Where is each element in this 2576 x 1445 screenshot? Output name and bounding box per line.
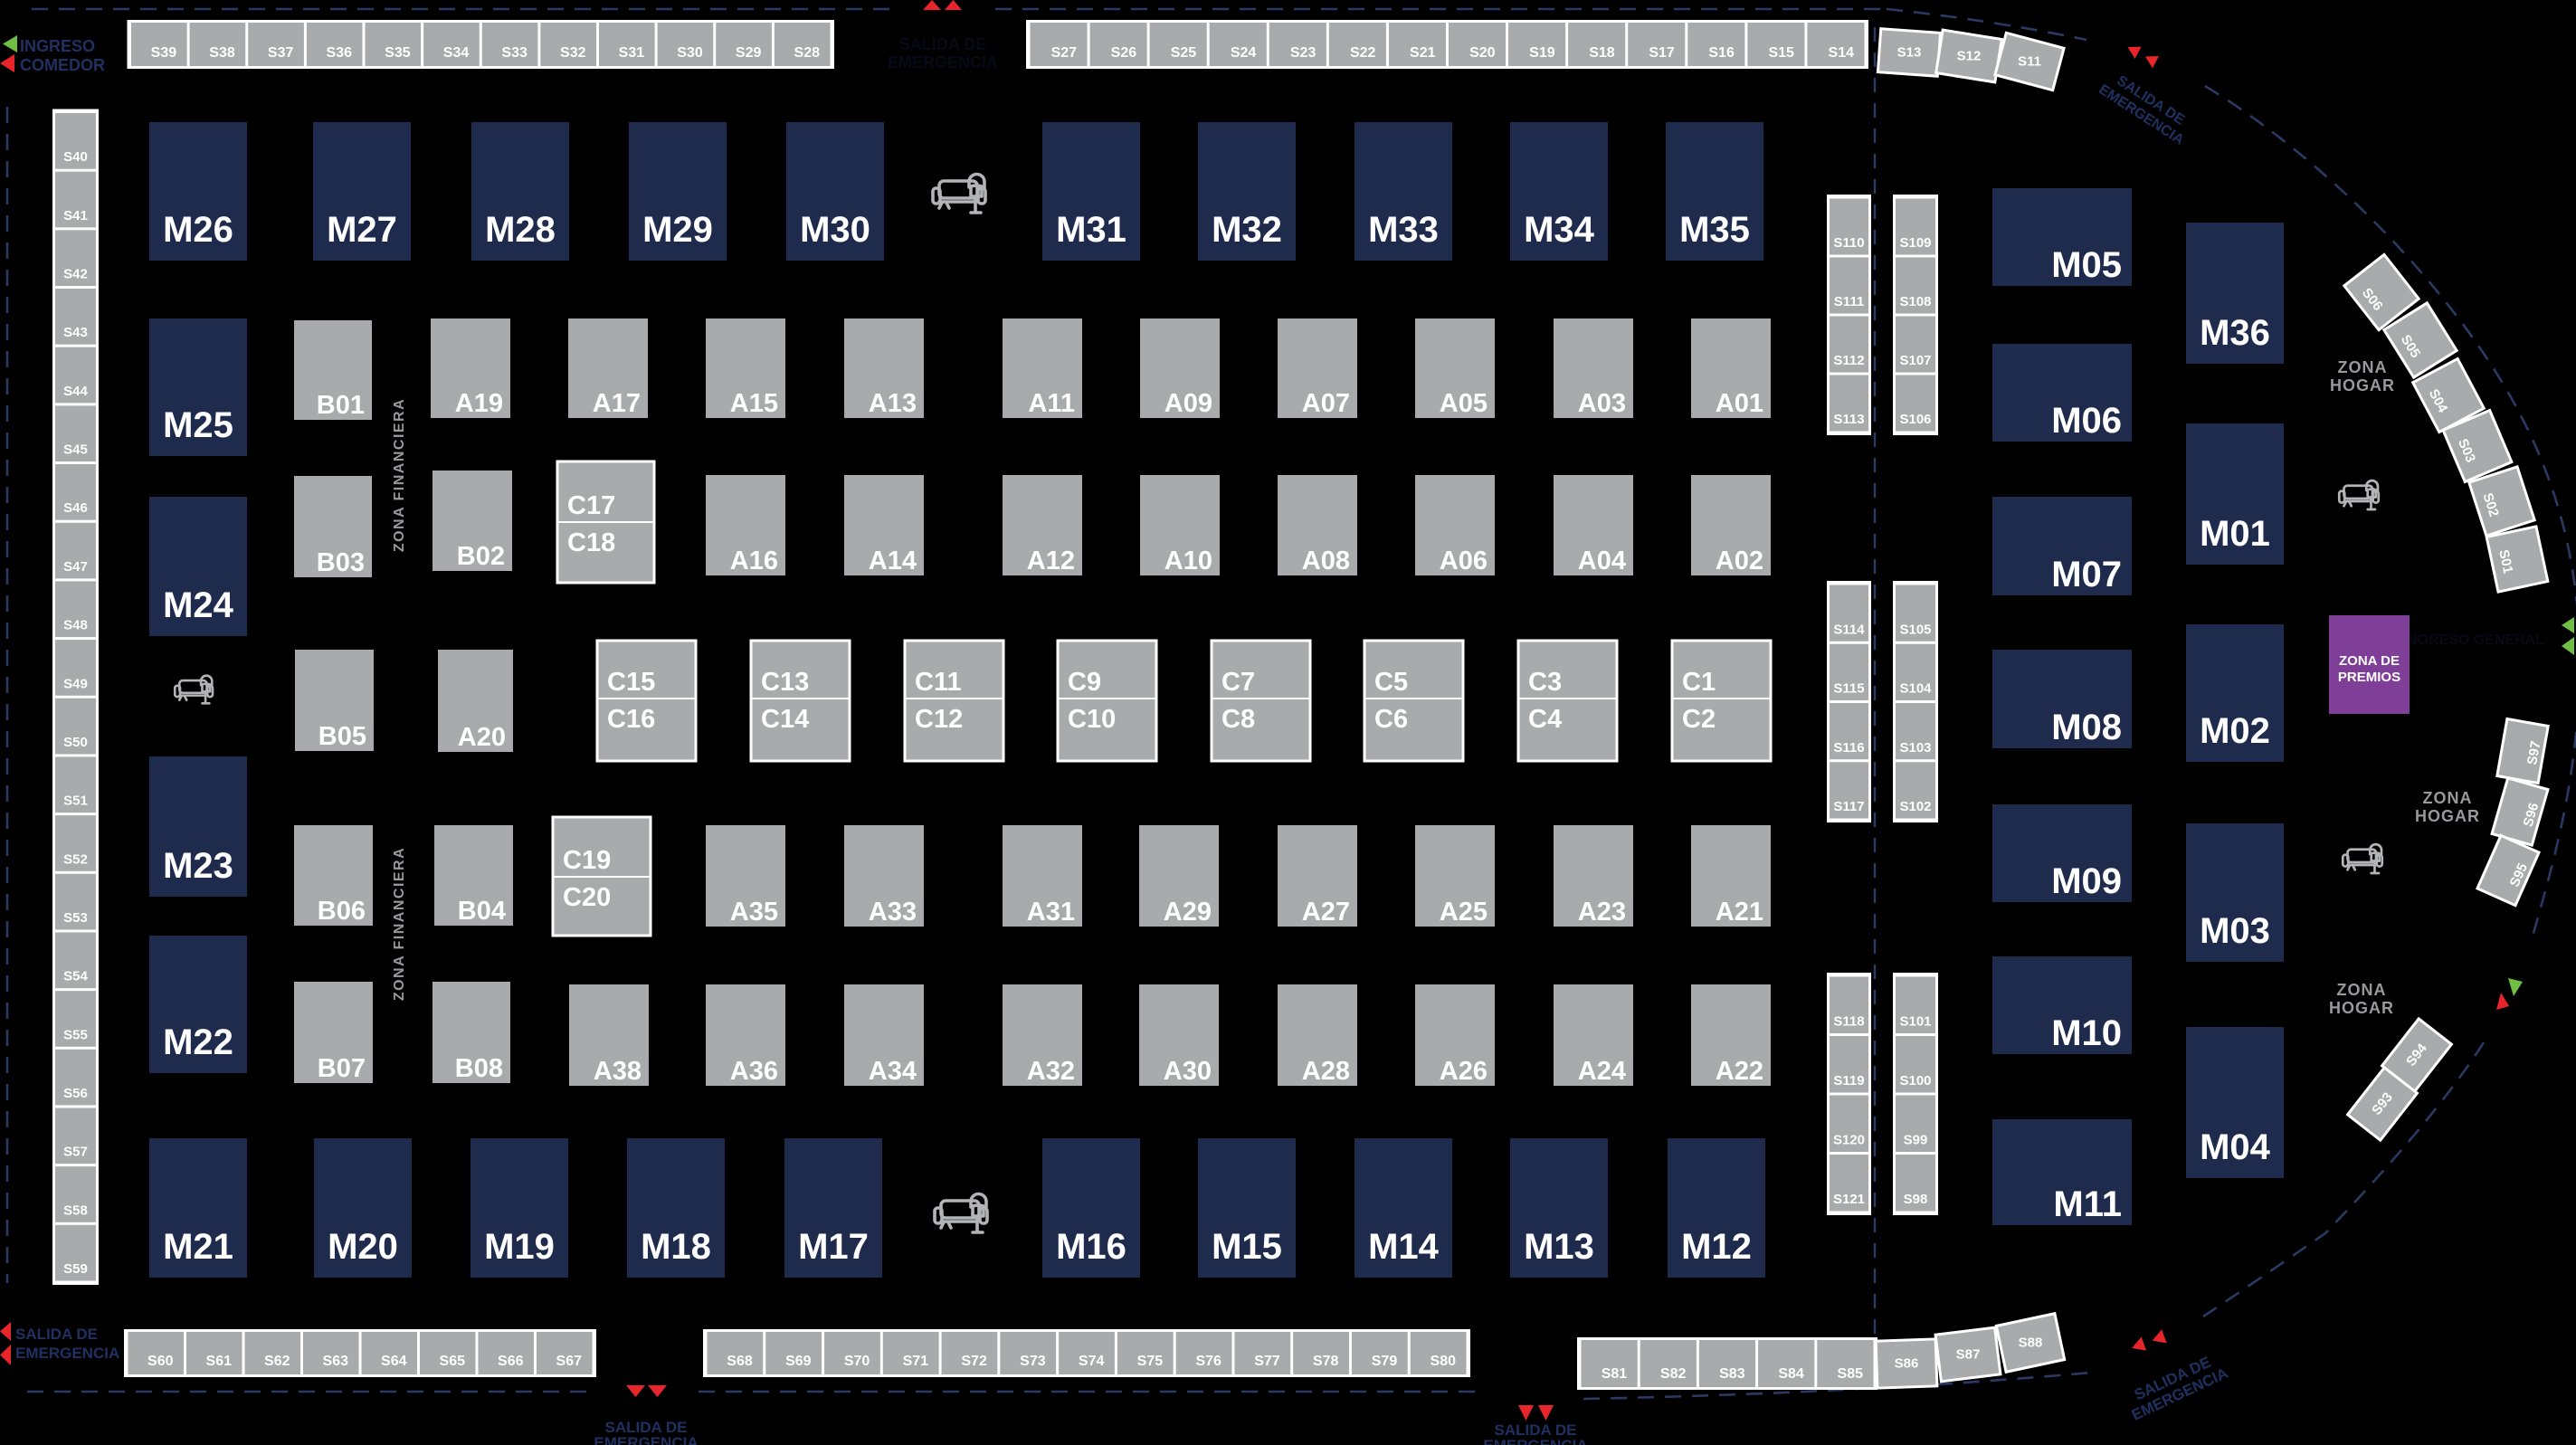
svg-text:A16: A16 <box>730 547 778 575</box>
svg-text:S76: S76 <box>1195 1354 1221 1369</box>
svg-text:S112: S112 <box>1833 353 1864 368</box>
svg-text:M13: M13 <box>1524 1227 1594 1267</box>
svg-text:A01: A01 <box>1716 389 1763 418</box>
svg-text:M09: M09 <box>2051 861 2122 901</box>
svg-text:S36: S36 <box>327 45 353 61</box>
svg-text:A35: A35 <box>730 898 778 927</box>
svg-text:A06: A06 <box>1440 547 1488 575</box>
svg-text:S81: S81 <box>1602 1366 1628 1382</box>
svg-text:S50: S50 <box>63 735 88 750</box>
svg-text:S20: S20 <box>1469 45 1496 61</box>
svg-text:EMERGENCIA: EMERGENCIA <box>15 1345 119 1362</box>
svg-text:A12: A12 <box>1027 547 1075 575</box>
svg-text:A27: A27 <box>1302 898 1350 927</box>
svg-text:M05: M05 <box>2051 245 2122 285</box>
svg-text:S80: S80 <box>1431 1354 1457 1369</box>
svg-text:A34: A34 <box>869 1057 917 1086</box>
svg-text:M33: M33 <box>1368 210 1439 250</box>
svg-text:A14: A14 <box>869 547 917 575</box>
svg-text:A13: A13 <box>869 389 917 418</box>
svg-text:S119: S119 <box>1833 1073 1864 1089</box>
svg-text:S83: S83 <box>1719 1366 1745 1382</box>
svg-text:S15: S15 <box>1768 45 1794 61</box>
svg-text:HOGAR: HOGAR <box>2330 376 2395 395</box>
svg-text:A11: A11 <box>1028 389 1075 418</box>
svg-text:INGRESO: INGRESO <box>20 37 95 55</box>
svg-text:A38: A38 <box>594 1057 642 1086</box>
svg-text:C20: C20 <box>563 883 611 912</box>
svg-text:M08: M08 <box>2051 708 2122 747</box>
svg-text:M15: M15 <box>1212 1227 1282 1267</box>
svg-text:S19: S19 <box>1529 45 1555 61</box>
svg-text:M16: M16 <box>1056 1227 1126 1267</box>
svg-text:A31: A31 <box>1027 898 1075 927</box>
svg-text:M32: M32 <box>1212 210 1282 250</box>
svg-text:M07: M07 <box>2051 555 2122 594</box>
svg-text:M24: M24 <box>163 585 234 625</box>
svg-text:S63: S63 <box>323 1354 349 1369</box>
svg-text:S103: S103 <box>1899 740 1931 756</box>
svg-text:S37: S37 <box>268 45 294 61</box>
svg-text:S88: S88 <box>2019 1336 2043 1351</box>
svg-text:SALIDA DE: SALIDA DE <box>15 1326 98 1343</box>
svg-text:M18: M18 <box>641 1227 711 1267</box>
svg-text:C18: C18 <box>567 528 615 557</box>
svg-text:A09: A09 <box>1164 389 1212 418</box>
svg-text:M10: M10 <box>2051 1013 2122 1053</box>
svg-text:A04: A04 <box>1578 547 1626 575</box>
svg-text:B06: B06 <box>318 897 366 926</box>
svg-text:C9: C9 <box>1068 668 1101 697</box>
svg-text:S34: S34 <box>443 45 470 61</box>
svg-text:PREMIOS: PREMIOS <box>2338 670 2400 685</box>
svg-text:M20: M20 <box>328 1227 398 1267</box>
svg-text:S39: S39 <box>151 45 177 61</box>
svg-text:S108: S108 <box>1899 294 1931 309</box>
svg-text:C16: C16 <box>607 705 655 734</box>
svg-text:S14: S14 <box>1829 45 1855 61</box>
svg-text:M12: M12 <box>1681 1227 1752 1267</box>
svg-text:S11: S11 <box>2018 54 2041 70</box>
svg-text:S28: S28 <box>794 45 821 61</box>
svg-text:S60: S60 <box>147 1354 174 1369</box>
svg-text:A24: A24 <box>1578 1057 1626 1086</box>
svg-text:S79: S79 <box>1372 1354 1398 1369</box>
svg-text:M21: M21 <box>163 1227 233 1267</box>
svg-text:S35: S35 <box>385 45 411 61</box>
svg-text:S47: S47 <box>63 559 88 575</box>
svg-text:M06: M06 <box>2051 401 2122 441</box>
svg-text:COMEDOR: COMEDOR <box>20 56 105 74</box>
svg-text:S23: S23 <box>1290 45 1317 61</box>
svg-text:A19: A19 <box>455 389 503 418</box>
svg-text:S72: S72 <box>961 1354 987 1369</box>
svg-text:M34: M34 <box>1524 210 1595 250</box>
svg-text:S29: S29 <box>736 45 762 61</box>
svg-text:S98: S98 <box>1904 1192 1928 1207</box>
svg-text:ZONA FINANCIERA: ZONA FINANCIERA <box>392 398 407 552</box>
svg-text:S66: S66 <box>498 1354 524 1369</box>
svg-text:A30: A30 <box>1164 1057 1212 1086</box>
svg-text:S114: S114 <box>1833 622 1865 637</box>
svg-text:B04: B04 <box>458 897 506 926</box>
svg-text:S121: S121 <box>1833 1192 1865 1207</box>
svg-text:C2: C2 <box>1682 705 1716 734</box>
svg-text:S71: S71 <box>903 1354 929 1369</box>
svg-text:S31: S31 <box>619 45 645 61</box>
svg-text:S105: S105 <box>1899 622 1931 637</box>
svg-text:C6: C6 <box>1374 705 1408 734</box>
svg-text:S26: S26 <box>1111 45 1137 61</box>
svg-text:C5: C5 <box>1374 668 1408 697</box>
svg-text:S61: S61 <box>206 1354 233 1369</box>
svg-text:A03: A03 <box>1578 389 1626 418</box>
svg-text:S73: S73 <box>1020 1354 1046 1369</box>
svg-text:S87: S87 <box>1956 1347 1981 1363</box>
svg-text:M02: M02 <box>2200 711 2270 751</box>
svg-text:S25: S25 <box>1171 45 1197 61</box>
svg-text:A26: A26 <box>1440 1057 1488 1086</box>
svg-text:A21: A21 <box>1716 898 1763 927</box>
svg-text:S77: S77 <box>1254 1354 1280 1369</box>
svg-text:S52: S52 <box>63 851 88 867</box>
svg-text:S64: S64 <box>381 1354 407 1369</box>
svg-text:M04: M04 <box>2200 1127 2271 1167</box>
svg-text:S113: S113 <box>1833 412 1864 427</box>
svg-text:S21: S21 <box>1410 45 1436 61</box>
svg-text:A28: A28 <box>1302 1057 1350 1086</box>
svg-text:M14: M14 <box>1368 1227 1440 1267</box>
svg-text:B05: B05 <box>318 722 366 751</box>
svg-text:S57: S57 <box>63 1145 88 1160</box>
svg-text:S32: S32 <box>560 45 586 61</box>
svg-text:S22: S22 <box>1350 45 1376 61</box>
svg-text:S41: S41 <box>63 208 88 223</box>
svg-text:C13: C13 <box>761 668 809 697</box>
svg-text:A36: A36 <box>730 1057 778 1086</box>
svg-text:HOGAR: HOGAR <box>2329 999 2394 1017</box>
svg-text:A25: A25 <box>1440 898 1488 927</box>
svg-text:S65: S65 <box>440 1354 466 1369</box>
svg-text:S86: S86 <box>1895 1356 1919 1372</box>
svg-text:EMERGENCIA: EMERGENCIA <box>888 53 998 71</box>
svg-text:B07: B07 <box>318 1054 366 1083</box>
svg-text:C19: C19 <box>563 846 611 875</box>
svg-text:S53: S53 <box>63 910 88 926</box>
svg-text:S117: S117 <box>1833 799 1864 814</box>
svg-text:S55: S55 <box>63 1027 88 1042</box>
svg-text:S84: S84 <box>1778 1366 1804 1382</box>
svg-text:M27: M27 <box>327 210 397 250</box>
svg-text:S111: S111 <box>1834 294 1864 309</box>
svg-text:A15: A15 <box>730 389 778 418</box>
svg-text:S43: S43 <box>63 325 88 340</box>
svg-text:A33: A33 <box>869 898 917 927</box>
svg-text:M35: M35 <box>1679 210 1750 250</box>
svg-text:S56: S56 <box>63 1086 88 1101</box>
svg-text:S48: S48 <box>63 618 88 633</box>
svg-text:C7: C7 <box>1221 668 1255 697</box>
svg-text:S99: S99 <box>1904 1133 1928 1148</box>
svg-text:A05: A05 <box>1440 389 1488 418</box>
svg-text:EMERGENCIA: EMERGENCIA <box>1483 1437 1587 1445</box>
svg-text:S115: S115 <box>1833 681 1864 697</box>
svg-text:C1: C1 <box>1682 668 1716 697</box>
svg-text:S100: S100 <box>1899 1073 1931 1089</box>
svg-text:HOGAR: HOGAR <box>2415 807 2480 825</box>
svg-text:A08: A08 <box>1302 547 1350 575</box>
svg-text:S110: S110 <box>1833 235 1864 251</box>
svg-text:C8: C8 <box>1221 705 1255 734</box>
svg-text:S33: S33 <box>501 45 528 61</box>
svg-text:S74: S74 <box>1079 1354 1105 1369</box>
svg-text:M26: M26 <box>163 210 233 250</box>
svg-text:M19: M19 <box>484 1227 555 1267</box>
svg-text:S54: S54 <box>63 969 88 984</box>
svg-text:C15: C15 <box>607 668 655 697</box>
svg-text:A29: A29 <box>1164 898 1212 927</box>
svg-text:M17: M17 <box>798 1227 869 1267</box>
svg-text:S120: S120 <box>1833 1133 1865 1148</box>
svg-text:S58: S58 <box>63 1203 88 1218</box>
svg-text:S46: S46 <box>63 500 88 516</box>
svg-text:M11: M11 <box>2053 1184 2122 1224</box>
svg-text:C3: C3 <box>1528 668 1562 697</box>
svg-text:C12: C12 <box>915 705 963 734</box>
svg-text:S69: S69 <box>785 1354 812 1369</box>
svg-text:S78: S78 <box>1313 1354 1339 1369</box>
svg-text:S45: S45 <box>63 442 88 458</box>
svg-text:ZONA: ZONA <box>2423 789 2473 807</box>
svg-text:S49: S49 <box>63 676 88 691</box>
svg-text:C11: C11 <box>915 668 962 697</box>
svg-text:M01: M01 <box>2200 514 2270 554</box>
svg-text:S17: S17 <box>1649 45 1675 61</box>
svg-text:S59: S59 <box>63 1261 88 1277</box>
svg-text:S18: S18 <box>1589 45 1615 61</box>
svg-text:A22: A22 <box>1716 1057 1763 1086</box>
svg-text:EMERGENCIA: EMERGENCIA <box>594 1434 698 1445</box>
svg-text:S40: S40 <box>63 149 88 165</box>
svg-text:S85: S85 <box>1838 1366 1864 1382</box>
svg-text:ZONA: ZONA <box>2337 981 2387 999</box>
svg-text:M36: M36 <box>2200 313 2270 353</box>
svg-text:M25: M25 <box>163 405 233 445</box>
svg-text:M28: M28 <box>485 210 556 250</box>
svg-text:S12: S12 <box>1957 49 1982 64</box>
svg-text:S42: S42 <box>63 267 88 282</box>
svg-text:A07: A07 <box>1302 389 1350 418</box>
svg-text:INGRESO GENERAL: INGRESO GENERAL <box>2403 632 2545 648</box>
svg-text:S75: S75 <box>1137 1354 1164 1369</box>
svg-text:B08: B08 <box>455 1054 503 1083</box>
svg-text:S102: S102 <box>1899 799 1931 814</box>
svg-text:M22: M22 <box>163 1022 233 1062</box>
svg-text:S27: S27 <box>1051 45 1078 61</box>
svg-text:A20: A20 <box>458 723 506 752</box>
svg-text:ZONA FINANCIERA: ZONA FINANCIERA <box>392 847 407 1001</box>
svg-text:A17: A17 <box>593 389 641 418</box>
svg-text:S107: S107 <box>1899 353 1931 368</box>
svg-text:S82: S82 <box>1660 1366 1687 1382</box>
svg-text:C4: C4 <box>1528 705 1562 734</box>
svg-text:M29: M29 <box>642 210 713 250</box>
svg-text:M03: M03 <box>2200 911 2270 951</box>
svg-text:S62: S62 <box>264 1354 290 1369</box>
svg-text:C17: C17 <box>567 491 615 520</box>
svg-text:ZONA: ZONA <box>2338 358 2388 376</box>
svg-text:A23: A23 <box>1578 898 1626 927</box>
svg-text:S109: S109 <box>1899 235 1931 251</box>
svg-text:SALIDA DE: SALIDA DE <box>899 35 986 53</box>
svg-text:A02: A02 <box>1716 547 1763 575</box>
svg-text:B03: B03 <box>317 548 365 577</box>
svg-text:S116: S116 <box>1833 740 1864 756</box>
svg-text:ZONA DE: ZONA DE <box>2339 653 2400 669</box>
svg-text:S70: S70 <box>844 1354 870 1369</box>
svg-text:S30: S30 <box>677 45 703 61</box>
svg-text:S24: S24 <box>1231 45 1257 61</box>
svg-text:M23: M23 <box>163 846 233 886</box>
svg-text:S51: S51 <box>63 794 88 809</box>
svg-text:S16: S16 <box>1708 45 1735 61</box>
svg-text:C14: C14 <box>761 705 809 734</box>
svg-text:S106: S106 <box>1899 412 1931 427</box>
svg-text:S44: S44 <box>63 384 88 399</box>
svg-text:S118: S118 <box>1833 1014 1864 1030</box>
svg-text:B02: B02 <box>457 542 505 571</box>
svg-text:A10: A10 <box>1164 547 1212 575</box>
svg-text:M31: M31 <box>1056 210 1126 250</box>
svg-text:S13: S13 <box>1897 45 1922 61</box>
svg-text:B01: B01 <box>317 391 365 420</box>
svg-text:S101: S101 <box>1899 1014 1931 1030</box>
svg-text:S38: S38 <box>209 45 235 61</box>
svg-text:S67: S67 <box>556 1354 583 1369</box>
svg-text:S68: S68 <box>727 1354 753 1369</box>
svg-text:A32: A32 <box>1027 1057 1075 1086</box>
svg-text:S104: S104 <box>1899 681 1932 697</box>
svg-text:M30: M30 <box>800 210 870 250</box>
svg-text:C10: C10 <box>1068 705 1116 734</box>
